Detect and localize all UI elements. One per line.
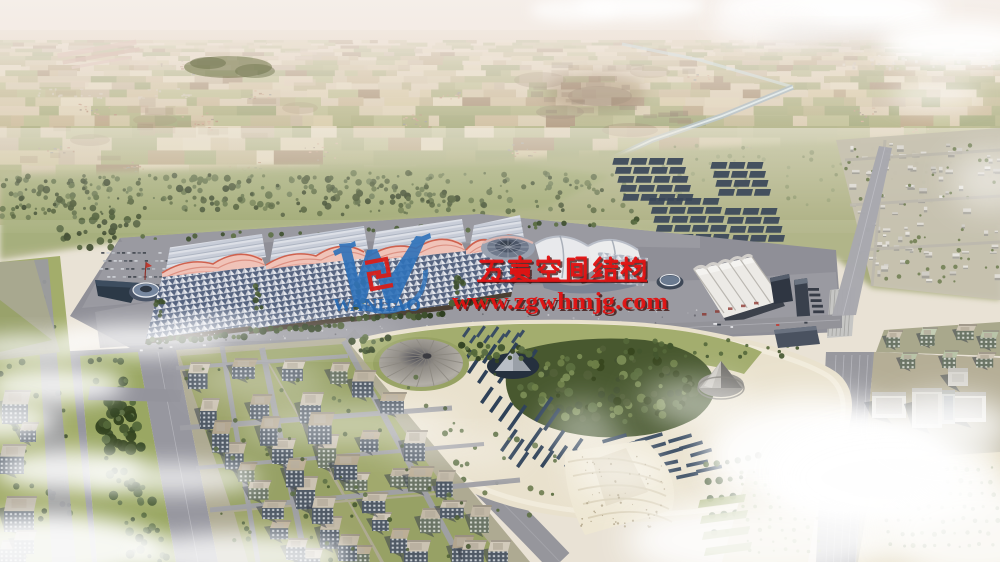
svg-text:WANHAO: WANHAO: [333, 295, 421, 315]
svg-text:www.zgwhmjg.com: www.zgwhmjg.com: [452, 288, 668, 315]
